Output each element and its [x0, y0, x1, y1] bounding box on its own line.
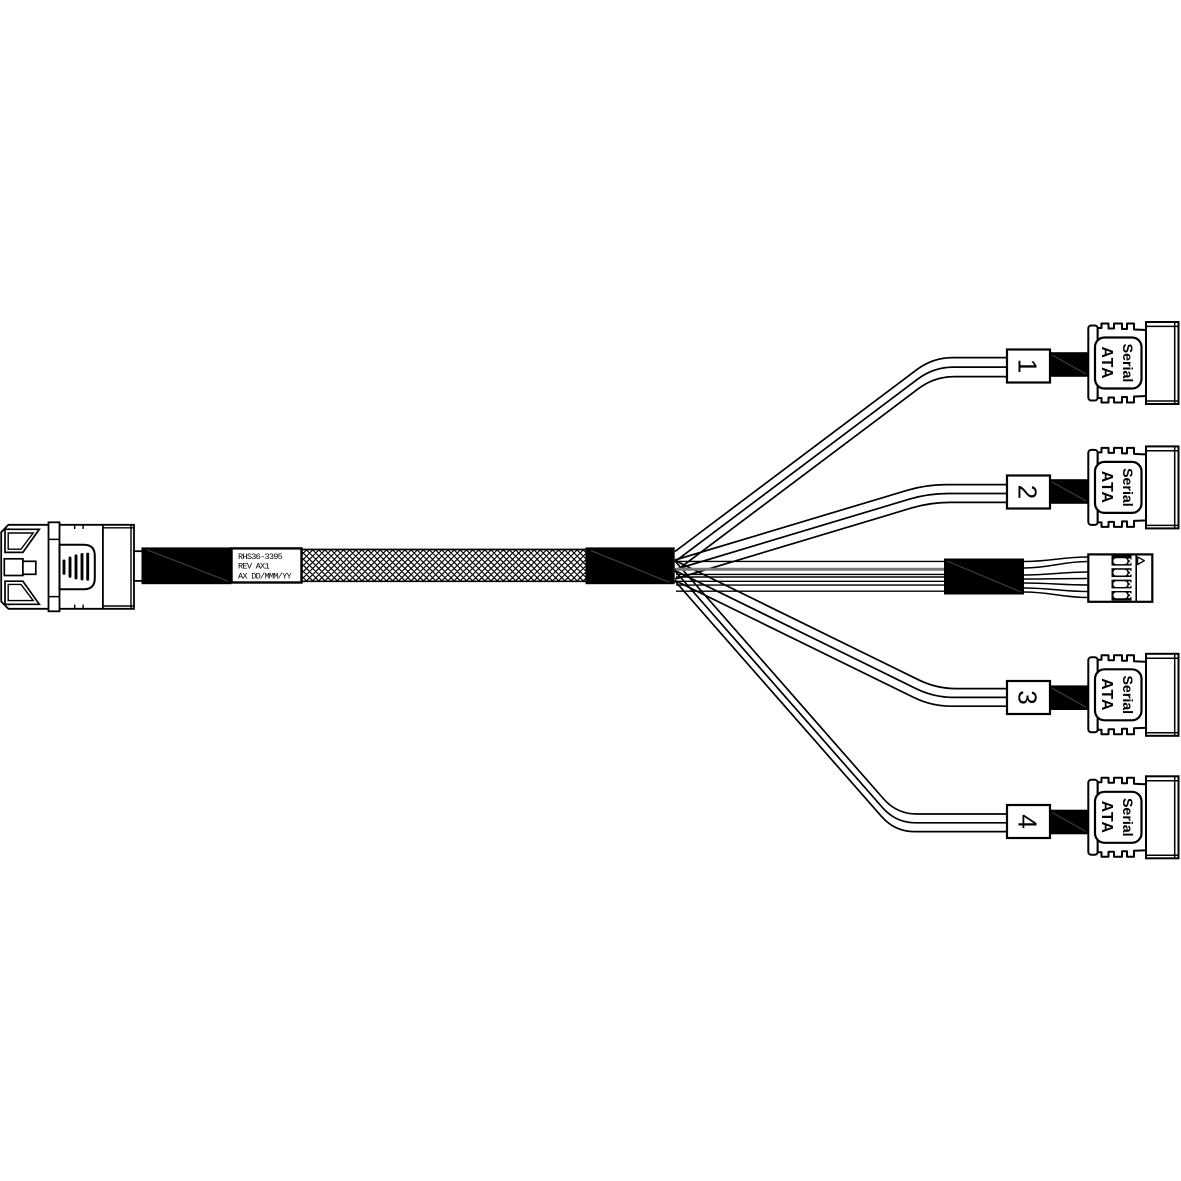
svg-text:1: 1	[1013, 359, 1043, 373]
svg-text:3: 3	[1013, 690, 1043, 704]
svg-text:4: 4	[1013, 814, 1043, 828]
svg-text:REV AX1: REV AX1	[238, 562, 269, 572]
svg-text:RHS36-3395: RHS36-3395	[238, 552, 283, 562]
svg-text:AX DD/MMM/YY: AX DD/MMM/YY	[238, 572, 291, 582]
svg-text:2: 2	[1013, 485, 1043, 499]
